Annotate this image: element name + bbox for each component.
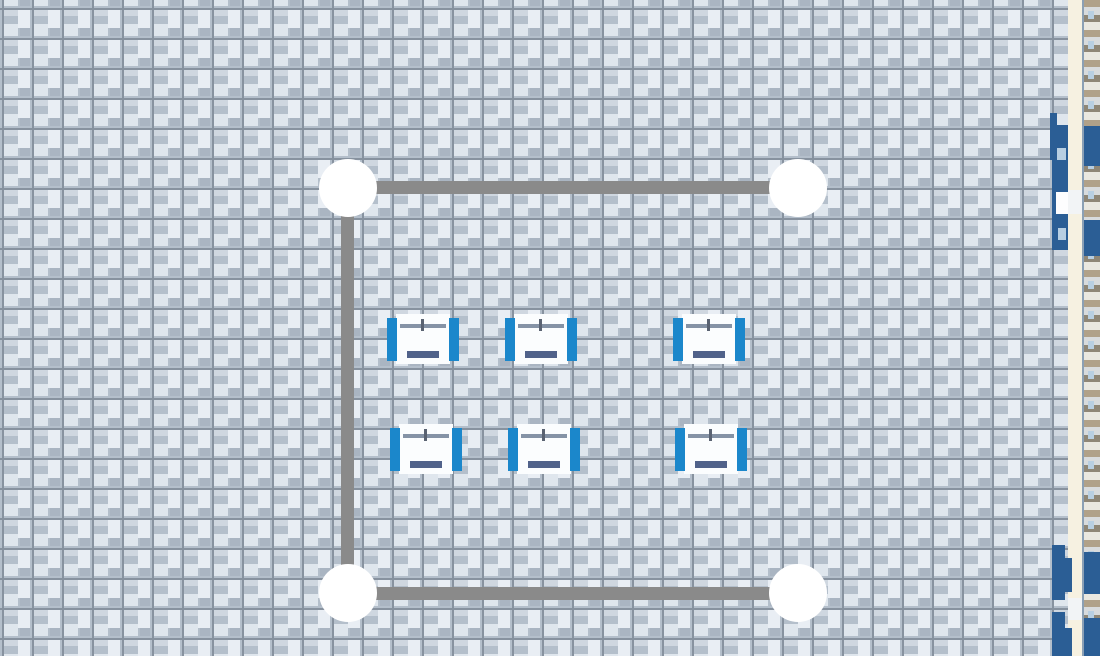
weight-bench[interactable]	[673, 314, 745, 364]
edge-block	[1068, 598, 1082, 620]
bench-side-left	[387, 318, 397, 361]
bench-side-right	[737, 428, 747, 471]
bench-side-left	[675, 428, 685, 471]
fence-post-node[interactable]	[319, 564, 377, 622]
fence-post-node[interactable]	[769, 159, 827, 217]
barbell-post	[424, 429, 427, 441]
edge-block	[1058, 228, 1066, 240]
bench-pad	[693, 351, 725, 358]
bench-side-right	[567, 318, 577, 361]
fence-segment[interactable]	[348, 181, 798, 194]
bench-pad	[525, 351, 557, 358]
bench-side-right	[449, 318, 459, 361]
scene-canvas	[0, 0, 1100, 656]
bench-side-left	[508, 428, 518, 471]
edge-block	[1057, 148, 1066, 160]
fence-post-node[interactable]	[769, 564, 827, 622]
edge-divider-line	[1082, 0, 1084, 656]
edge-block	[1064, 628, 1072, 656]
edge-block	[1064, 558, 1072, 592]
weight-bench[interactable]	[505, 314, 577, 364]
barbell-post	[709, 429, 712, 441]
barbell-post	[707, 319, 710, 331]
edge-block	[1056, 192, 1068, 214]
weight-bench[interactable]	[675, 424, 747, 474]
bench-pad	[528, 461, 560, 468]
game-viewport[interactable]	[0, 0, 1100, 656]
fence-segment[interactable]	[341, 188, 354, 593]
bench-pad	[410, 461, 442, 468]
barbell-post	[421, 319, 424, 331]
bench-side-left	[673, 318, 683, 361]
edge-block	[1084, 618, 1100, 656]
fence-segment[interactable]	[348, 587, 798, 600]
fence-post-node[interactable]	[319, 159, 377, 217]
edge-block	[1068, 190, 1082, 214]
weight-bench[interactable]	[390, 424, 462, 474]
weight-bench[interactable]	[508, 424, 580, 474]
edge-block	[1084, 552, 1100, 594]
weight-bench[interactable]	[387, 314, 459, 364]
bench-side-right	[452, 428, 462, 471]
bench-side-left	[505, 318, 515, 361]
edge-block	[1052, 612, 1065, 656]
sidewalk-strip	[1068, 0, 1082, 656]
barbell-post	[542, 429, 545, 441]
edge-block	[1084, 220, 1100, 256]
bench-pad	[695, 461, 727, 468]
bench-pad	[407, 351, 439, 358]
edge-block	[1052, 545, 1065, 600]
barbell-post	[539, 319, 542, 331]
bench-side-right	[735, 318, 745, 361]
edge-block	[1084, 126, 1100, 166]
bench-side-left	[390, 428, 400, 471]
bench-side-right	[570, 428, 580, 471]
